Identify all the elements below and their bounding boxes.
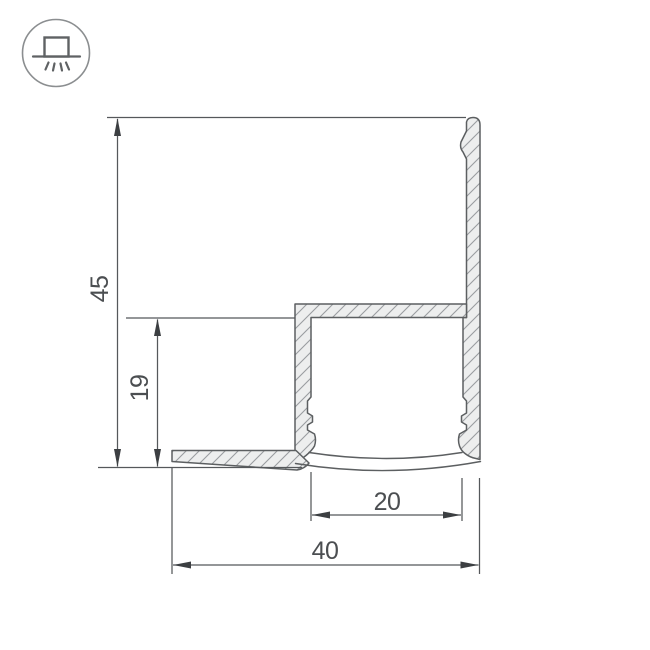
arrow-left-icon bbox=[312, 512, 330, 519]
surface-mounted-light-icon bbox=[23, 20, 90, 87]
dimension-inner-height: 19 bbox=[98, 318, 302, 468]
arrow-up-icon bbox=[114, 118, 121, 136]
dimension-label-inner-width: 20 bbox=[374, 488, 401, 516]
profile-shelf-and-left-wall bbox=[295, 304, 467, 463]
diffuser-top-curve bbox=[309, 453, 462, 459]
profile-cross-section-drawing: 45 19 20 40 bbox=[0, 0, 650, 650]
dimension-label-total-width: 40 bbox=[312, 537, 339, 565]
profile-right-wall bbox=[459, 118, 481, 460]
arrow-down-icon bbox=[114, 449, 121, 467]
icon-light-rays bbox=[46, 63, 70, 71]
dimension-total-width: 40 bbox=[172, 467, 480, 574]
arrow-right-icon bbox=[461, 562, 479, 569]
profile-body bbox=[172, 118, 481, 471]
arrow-down-icon bbox=[154, 449, 161, 467]
dimension-inner-width: 20 bbox=[311, 472, 462, 521]
arrow-left-icon bbox=[173, 562, 191, 569]
dimension-label-inner-height: 19 bbox=[126, 375, 154, 402]
technical-drawing-page: 45 19 20 40 bbox=[0, 0, 650, 650]
arrow-up-icon bbox=[154, 319, 161, 337]
arrow-right-icon bbox=[443, 512, 461, 519]
icon-fixture-box bbox=[45, 38, 69, 57]
dimension-label-total-height: 45 bbox=[86, 276, 114, 303]
dimension-total-height: 45 bbox=[86, 118, 466, 468]
diffuser-bottom-curve bbox=[296, 462, 481, 471]
